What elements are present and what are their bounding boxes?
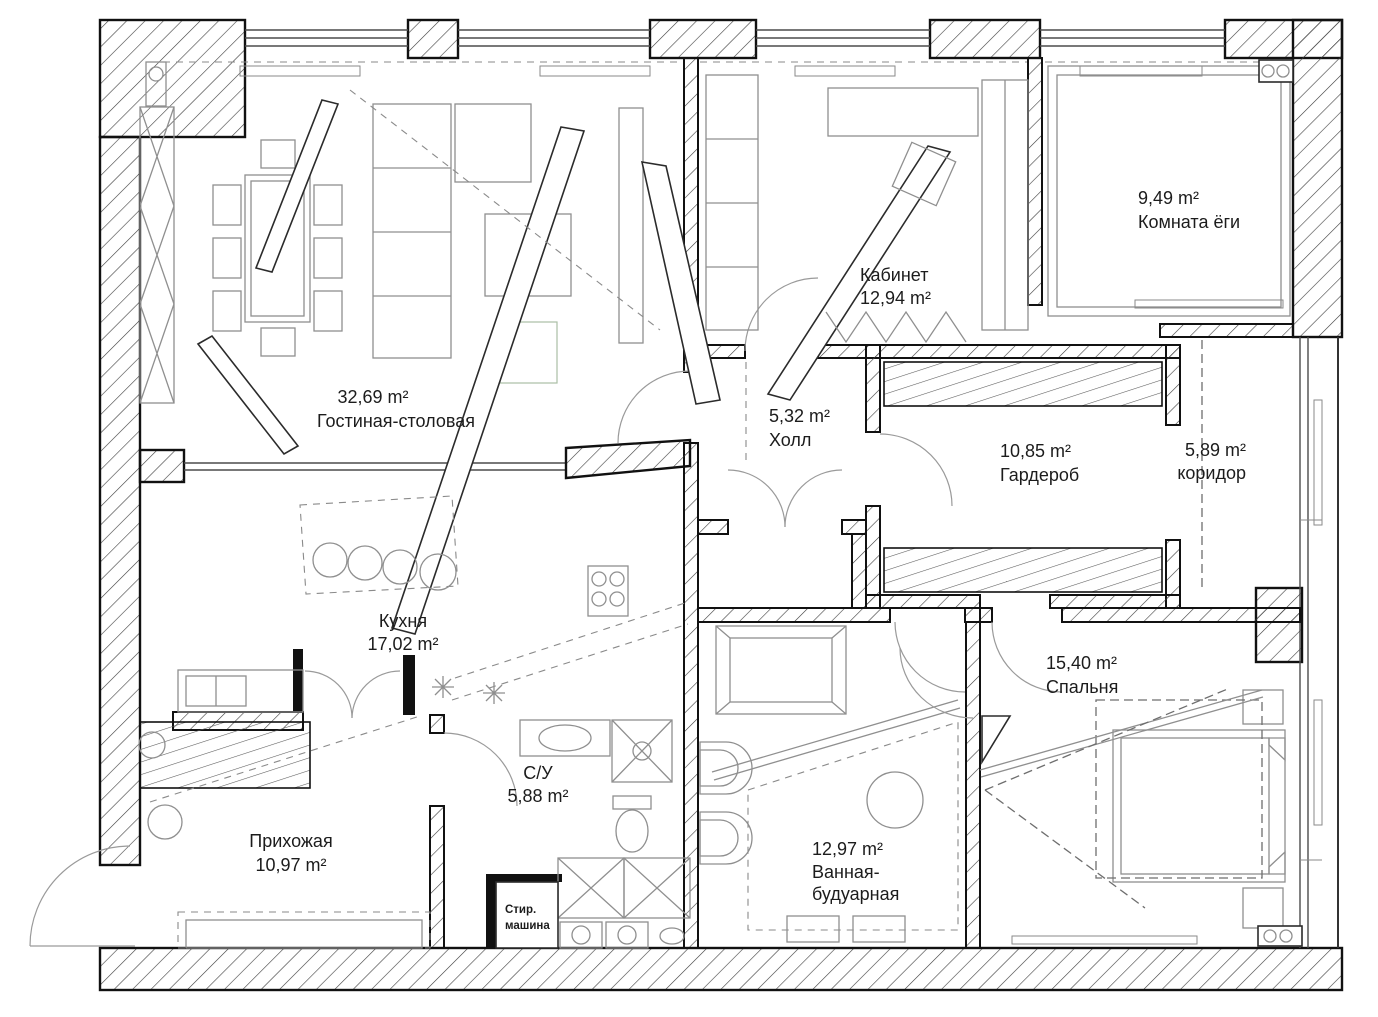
door-kitchen-double-right: [352, 671, 400, 718]
angled-panel-1: [256, 100, 338, 272]
wall-pier-top-2: [650, 20, 756, 58]
door-kitchen-double-left: [305, 671, 352, 718]
label-wc-area: 5,88 m²: [507, 786, 568, 806]
jamb-kitchen-left: [293, 649, 303, 713]
nightstand-1: [1243, 690, 1283, 724]
kitchen-stool-2: [348, 546, 382, 580]
projector-beam-1: [985, 688, 1230, 790]
label-office-area: 12,94 m²: [860, 288, 931, 308]
door-bath: [895, 622, 965, 692]
door-wc: [444, 733, 517, 806]
office-desk: [828, 88, 978, 136]
wall-hall-south-a: [698, 520, 728, 534]
wall-vestibule-right: [852, 534, 866, 608]
wall-office-yoga: [1028, 58, 1042, 305]
sofa-corner: [455, 104, 531, 182]
label-washer-line2: машина: [505, 920, 550, 932]
bed-pillow-top: [1269, 738, 1285, 760]
kitchen-sink-1: [432, 676, 454, 698]
wall-yoga-corridor: [1160, 324, 1293, 337]
label-bedroom-area: 15,40 m²: [1046, 653, 1117, 673]
windows: [150, 30, 1322, 948]
bed-pillow-bottom: [1269, 852, 1285, 874]
label-wardrobe-name: Гардероб: [1000, 465, 1079, 485]
wall-pier-top-3: [930, 20, 1040, 58]
kitchen-stool-1: [313, 543, 347, 577]
label-entry-name: Прихожая: [249, 831, 332, 851]
bath-round-chair: [867, 772, 923, 828]
bedroom-shelf-b: [981, 697, 1263, 777]
door-wardrobe: [880, 434, 952, 506]
laundry-basin: [660, 928, 684, 944]
floor-plan-page: 32,69 m² Гостиная-столовая Кабинет 12,94…: [0, 0, 1378, 1017]
wall-entry-wc-b: [430, 806, 444, 948]
door-hall-double-left: [728, 470, 785, 527]
window-right-glazing: [1300, 337, 1322, 948]
wall-nib-bedroom: [982, 716, 1010, 762]
wall-living-hall-south: [684, 443, 698, 948]
label-corridor-area: 5,89 m²: [1185, 440, 1246, 460]
door-hall-double-right: [785, 470, 842, 527]
office-closet-zigzag: [826, 312, 966, 342]
label-wardrobe-area: 10,85 m²: [1000, 441, 1071, 461]
label-corridor-name: коридор: [1177, 463, 1246, 483]
bath-bench-2: [853, 916, 905, 942]
angled-panel-2: [392, 127, 584, 634]
kitchen-sink-2: [483, 682, 505, 704]
label-yoga-area: 9,49 m²: [1138, 188, 1199, 208]
label-office-name: Кабинет: [860, 265, 928, 285]
bath-diagonal-a: [712, 700, 958, 772]
window-top-office: [756, 30, 930, 46]
kitchen-counter-dash-b: [452, 624, 688, 700]
wall-pier-top-1: [408, 20, 458, 58]
door-living-hall: [618, 371, 690, 443]
sofa: [373, 104, 451, 358]
label-bath-area: 12,97 m²: [812, 839, 883, 859]
hall-wardrobe-corridor: [746, 340, 1202, 592]
angled-panel-4: [642, 162, 720, 404]
wall-right-top: [1293, 20, 1342, 337]
label-bath-name1: Ванная-: [812, 862, 880, 882]
radiators: [150, 62, 1290, 76]
label-bath-name2: будуарная: [812, 884, 899, 904]
wall-wardrobe-south-a: [866, 595, 980, 608]
bed: [1113, 730, 1285, 882]
jamb-kitchen-right: [403, 655, 415, 715]
wall-bedroom-north-a: [980, 608, 992, 622]
bath-bench-1: [787, 916, 839, 942]
wall-wardrobe-south-b: [1050, 595, 1180, 608]
floor-plan-drawing: 32,69 m² Гостиная-столовая Кабинет 12,94…: [0, 0, 1378, 1017]
bathtub: [716, 626, 846, 714]
wall-right-mid-block: [1256, 588, 1302, 662]
toilet-tank: [613, 796, 651, 809]
wall-washer-closet-left: [486, 874, 496, 948]
label-washer-line1: Стир.: [505, 904, 536, 916]
wall-hall-south-b: [842, 520, 866, 534]
label-living-area: 32,69 m²: [337, 387, 408, 407]
label-kitchen-name: Кухня: [379, 611, 427, 631]
angled-panel-5: [198, 336, 298, 454]
window-top-yoga: [1040, 30, 1225, 46]
bath-inner-door-arc: [900, 648, 973, 718]
label-entry-area: 10,97 m²: [255, 855, 326, 875]
wall-kitchen-pier-left: [140, 450, 184, 482]
wall-hall-wardrobe-b: [866, 506, 880, 608]
wall-entry-wc-a: [430, 715, 444, 733]
wardrobe-rail-bottom: [884, 548, 1162, 592]
bedroom-furniture: [980, 688, 1302, 946]
entry-bench: [186, 920, 422, 948]
toilet-wc: [616, 810, 648, 852]
label-wc-name: С/У: [523, 763, 553, 783]
bedroom-tv-console: [1012, 936, 1197, 944]
label-hall-name: Холл: [769, 430, 811, 450]
entry-pouf-2: [148, 805, 182, 839]
wall-corner-top-left: [100, 20, 245, 137]
wardrobe-rail-top: [884, 362, 1162, 406]
wall-bath-north-stub: [965, 608, 980, 622]
wall-bedroom-north-b: [1062, 608, 1300, 622]
wall-bath-bedroom: [966, 622, 980, 948]
label-bedroom-name: Спальня: [1046, 677, 1118, 697]
wall-bottom: [100, 948, 1342, 990]
kitchen-counter-dash-a: [455, 602, 688, 678]
entry-bench-dash: [178, 912, 430, 948]
wall-kitchen-wedge: [566, 440, 690, 478]
label-kitchen-area: 17,02 m²: [367, 634, 438, 654]
wall-left: [100, 137, 140, 865]
wc-sink: [539, 725, 591, 751]
label-yoga-name: Комната ёги: [1138, 212, 1240, 232]
vent-box-top: [1259, 60, 1293, 82]
nightstand-2: [1243, 888, 1283, 928]
wall-wardrobe-right-a: [1166, 345, 1180, 425]
wall-hall-wardrobe-a: [866, 345, 880, 432]
label-living-name: Гостиная-столовая: [317, 411, 475, 431]
wall-washer-closet-top: [486, 874, 562, 882]
label-hall-area: 5,32 m²: [769, 406, 830, 426]
bath-diagonal-b: [714, 708, 960, 780]
wall-bath-north: [698, 608, 890, 622]
